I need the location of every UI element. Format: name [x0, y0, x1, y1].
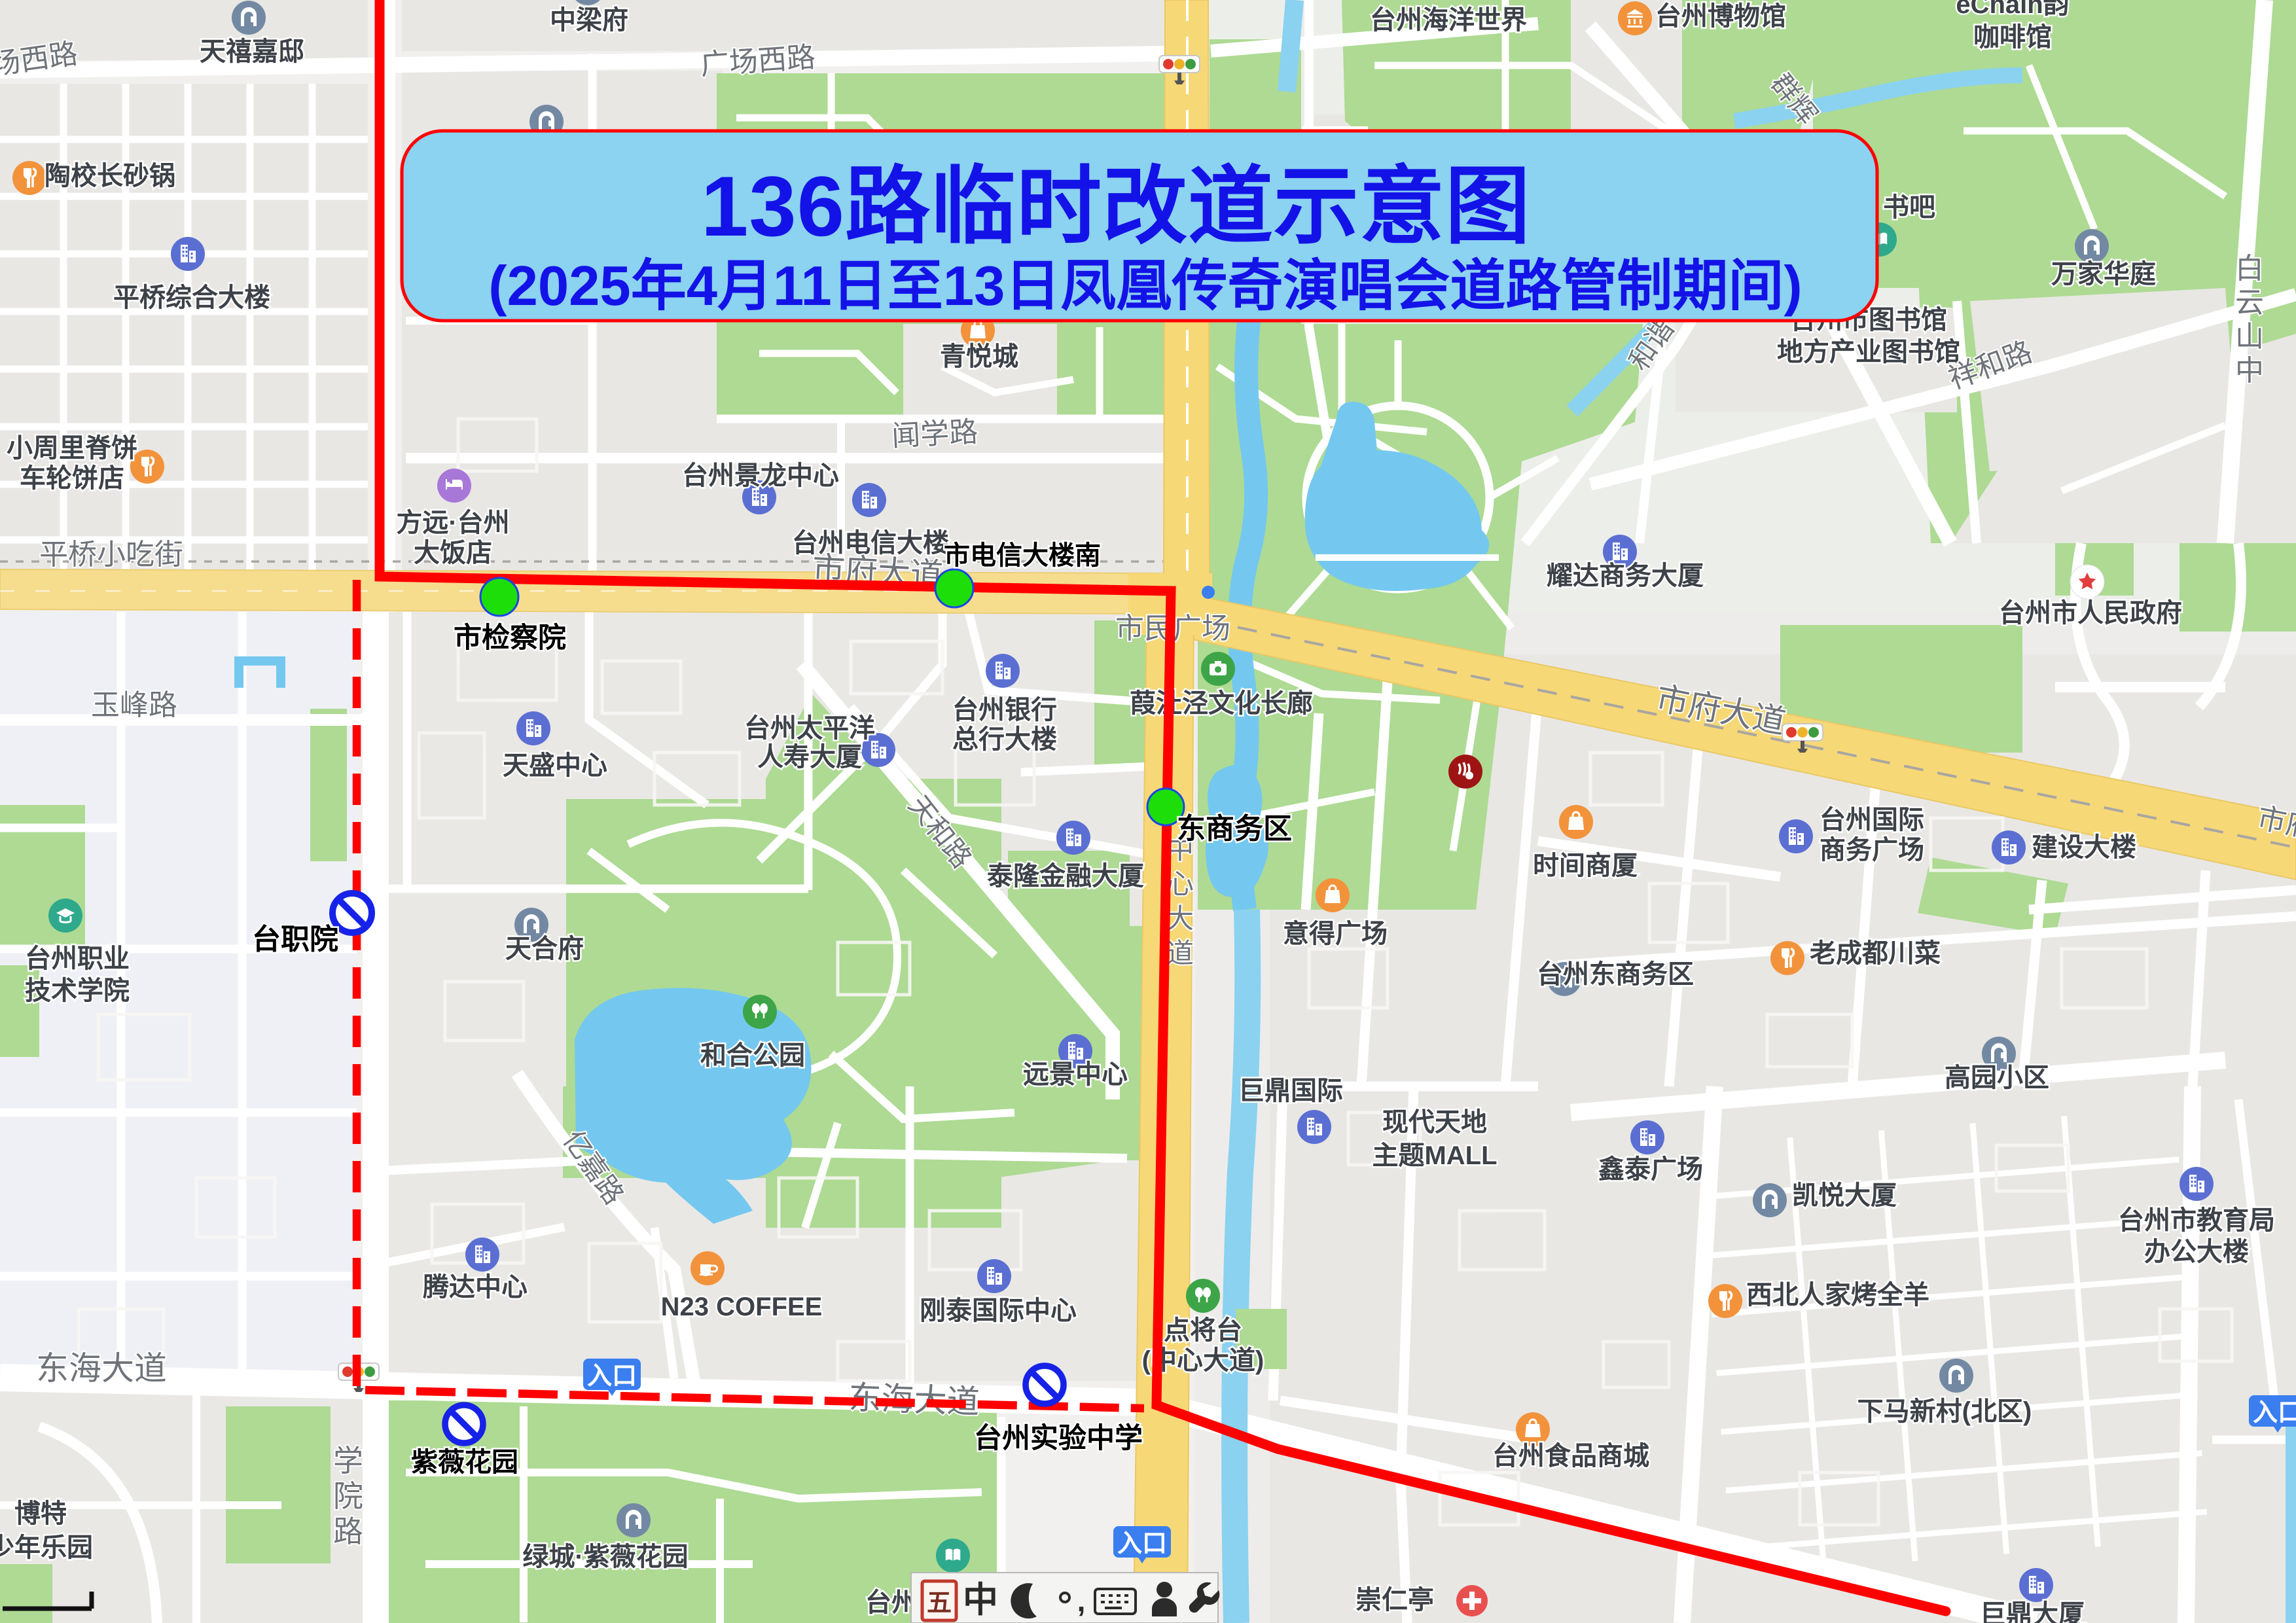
svg-text:山: 山	[2235, 321, 2264, 353]
svg-text:台州职业: 台州职业	[25, 944, 130, 973]
svg-text:eChain韵: eChain韵	[1956, 0, 2069, 19]
svg-text:五: 五	[927, 1590, 952, 1617]
svg-text:台州海洋世界: 台州海洋世界	[1370, 6, 1527, 35]
svg-text:,: ,	[1077, 1584, 1086, 1618]
svg-text:平桥综合大楼: 平桥综合大楼	[113, 283, 270, 312]
svg-text:远景中心: 远景中心	[1023, 1060, 1128, 1089]
svg-text:凯悦大厦: 凯悦大厦	[1792, 1181, 1897, 1210]
svg-text:鑫泰广场: 鑫泰广场	[1598, 1154, 1703, 1184]
svg-text:高园小区: 高园小区	[1945, 1063, 2049, 1092]
svg-text:学: 学	[333, 1444, 363, 1478]
svg-text:N23 COFFEE: N23 COFFEE	[661, 1293, 823, 1321]
svg-text:泰隆金融大厦: 泰隆金融大厦	[987, 861, 1144, 891]
svg-text:老成都川菜: 老成都川菜	[1810, 939, 1941, 968]
svg-text:中: 中	[963, 1580, 998, 1620]
svg-text:腾达中心: 腾达中心	[423, 1273, 528, 1302]
svg-text:大: 大	[1166, 903, 1194, 934]
svg-text:时间商厦: 时间商厦	[1533, 851, 1638, 880]
svg-text:下马新村(北区): 下马新村(北区)	[1857, 1397, 2032, 1426]
svg-text:台州景龙中心: 台州景龙中心	[682, 461, 839, 490]
svg-text:陶校长砂锅: 陶校长砂锅	[45, 162, 175, 190]
svg-text:绿城·紫薇花园: 绿城·紫薇花园	[522, 1543, 688, 1571]
svg-text:台州: 台州	[865, 1588, 918, 1617]
svg-text:天禧嘉邸: 天禧嘉邸	[200, 37, 304, 66]
svg-text:小周里脊饼: 小周里脊饼	[7, 434, 137, 463]
svg-text:青悦城: 青悦城	[940, 342, 1018, 371]
svg-text:万家华庭: 万家华庭	[2051, 260, 2156, 289]
svg-text:总行大楼: 总行大楼	[952, 725, 1057, 754]
svg-text:136路临时改道示意图: 136路临时改道示意图	[701, 158, 1531, 254]
svg-text:少年乐园: 少年乐园	[0, 1533, 93, 1562]
svg-text:白: 白	[2235, 253, 2264, 285]
svg-text:路: 路	[333, 1514, 363, 1548]
svg-text:闻学路: 闻学路	[891, 416, 978, 453]
svg-text:办公大楼: 办公大楼	[2144, 1238, 2249, 1266]
svg-text:人寿大厦: 人寿大厦	[757, 743, 862, 772]
svg-text:现代天地: 现代天地	[1382, 1108, 1487, 1137]
svg-text:主题MALL: 主题MALL	[1372, 1141, 1497, 1170]
svg-text:技术学院: 技术学院	[25, 976, 130, 1005]
svg-text:东商务区: 东商务区	[1177, 813, 1292, 845]
svg-text:院: 院	[333, 1479, 363, 1513]
svg-text:和合公园: 和合公园	[700, 1041, 805, 1070]
svg-text:台州市人民政府: 台州市人民政府	[1999, 599, 2182, 628]
svg-text:方远·台州: 方远·台州	[396, 508, 509, 537]
svg-text:云: 云	[2235, 287, 2264, 319]
svg-text:台州实验中学: 台州实验中学	[974, 1423, 1143, 1454]
svg-text:道: 道	[1166, 938, 1194, 969]
svg-text:地方产业图书馆: 地方产业图书馆	[1777, 338, 1960, 366]
svg-text:刚泰国际中心: 刚泰国际中心	[920, 1296, 1077, 1325]
svg-text:台州东商务区: 台州东商务区	[1537, 960, 1694, 989]
svg-text:台州太平洋: 台州太平洋	[744, 714, 875, 743]
svg-text:巨鼎大厦: 巨鼎大厦	[1980, 1600, 2085, 1623]
svg-text:博特: 博特	[14, 1499, 67, 1528]
svg-text:(2025年4月11日至13日凤凰传奇演唱会道路管制期间): (2025年4月11日至13日凤凰传奇演唱会道路管制期间)	[488, 255, 1802, 317]
svg-text:书吧: 书吧	[1883, 193, 1935, 222]
svg-text:咖啡馆: 咖啡馆	[1973, 23, 2052, 52]
svg-text:建设大楼: 建设大楼	[2032, 833, 2136, 862]
svg-text:东海大道: 东海大道	[36, 1350, 167, 1387]
svg-text:耀达商务大厦: 耀达商务大厦	[1547, 562, 1704, 590]
svg-text:台州食品商城: 台州食品商城	[1492, 1442, 1649, 1471]
svg-text:巨鼎国际: 巨鼎国际	[1238, 1077, 1343, 1105]
svg-text:意得广场: 意得广场	[1283, 919, 1388, 948]
svg-text:大饭店: 大饭店	[414, 539, 492, 567]
svg-text:市检察院: 市检察院	[454, 622, 566, 654]
svg-text:台州国际: 台州国际	[1820, 806, 1924, 834]
svg-text:紫薇花园: 紫薇花园	[411, 1447, 518, 1477]
svg-text:中梁府: 中梁府	[550, 6, 628, 35]
svg-text:天盛中心: 天盛中心	[503, 751, 607, 780]
svg-text:台职院: 台职院	[252, 923, 338, 955]
svg-text:台州市教育局: 台州市教育局	[2118, 1206, 2275, 1235]
svg-text:点将台: 点将台	[1164, 1316, 1242, 1345]
svg-text:商务广场: 商务广场	[1820, 836, 1924, 865]
svg-text:中: 中	[2235, 355, 2264, 387]
svg-text:玉峰路: 玉峰路	[91, 689, 177, 721]
svg-text:葭沚泾文化长廊: 葭沚泾文化长廊	[1130, 689, 1313, 718]
svg-text:崇仁亭: 崇仁亭	[1355, 1586, 1434, 1614]
svg-text:台州博物馆: 台州博物馆	[1655, 2, 1786, 31]
svg-text:市电信大楼南: 市电信大楼南	[944, 541, 1101, 570]
svg-text:台州银行: 台州银行	[952, 696, 1057, 724]
svg-text:平桥小吃街: 平桥小吃街	[39, 539, 183, 571]
svg-text:天合府: 天合府	[505, 935, 584, 963]
svg-text:车轮饼店: 车轮饼店	[20, 464, 124, 493]
svg-text:西北人家烤全羊: 西北人家烤全羊	[1746, 1280, 1929, 1310]
